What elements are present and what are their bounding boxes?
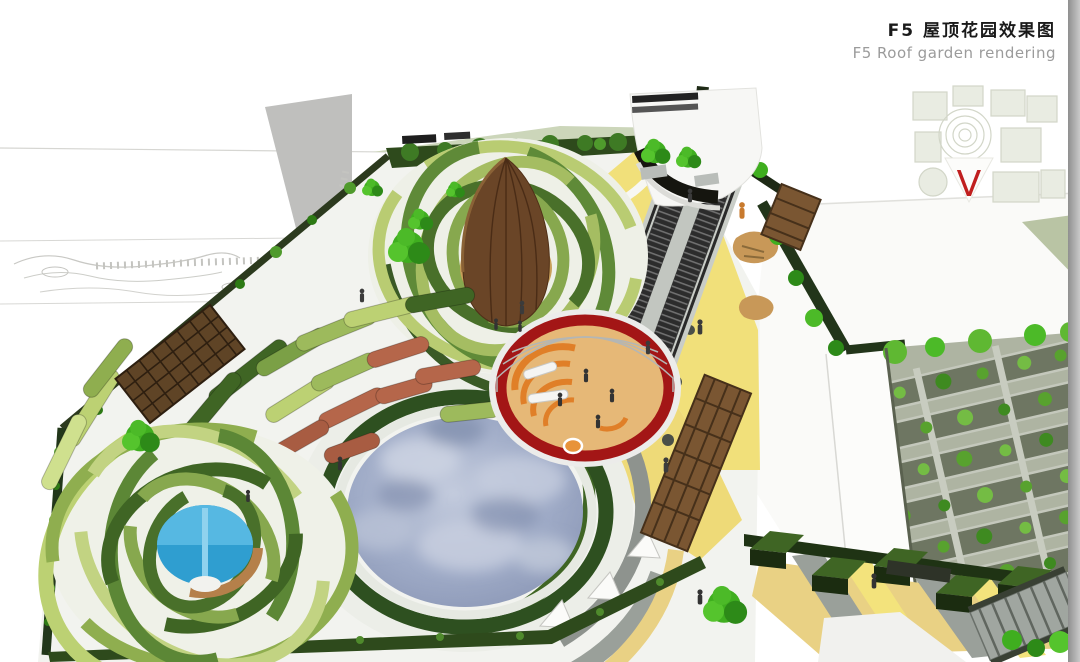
view-direction-marker: V xyxy=(957,164,982,205)
page-title-en: F5 Roof garden rendering xyxy=(853,44,1056,62)
page-edge-band xyxy=(1068,0,1080,662)
dome-playground xyxy=(493,313,677,463)
site-plan-shapes xyxy=(913,86,1065,202)
key-map: V xyxy=(905,80,1068,218)
orange-porthole xyxy=(564,439,582,453)
title-block: F5 屋顶花园效果图 F5 Roof garden rendering xyxy=(853,16,1056,62)
key-map-plan: V xyxy=(905,80,1068,218)
page-title-zh: F5 屋顶花园效果图 xyxy=(853,16,1056,41)
slide-canvas: V F5 屋顶花园效果图 F5 Roof garden rendering xyxy=(0,0,1080,662)
